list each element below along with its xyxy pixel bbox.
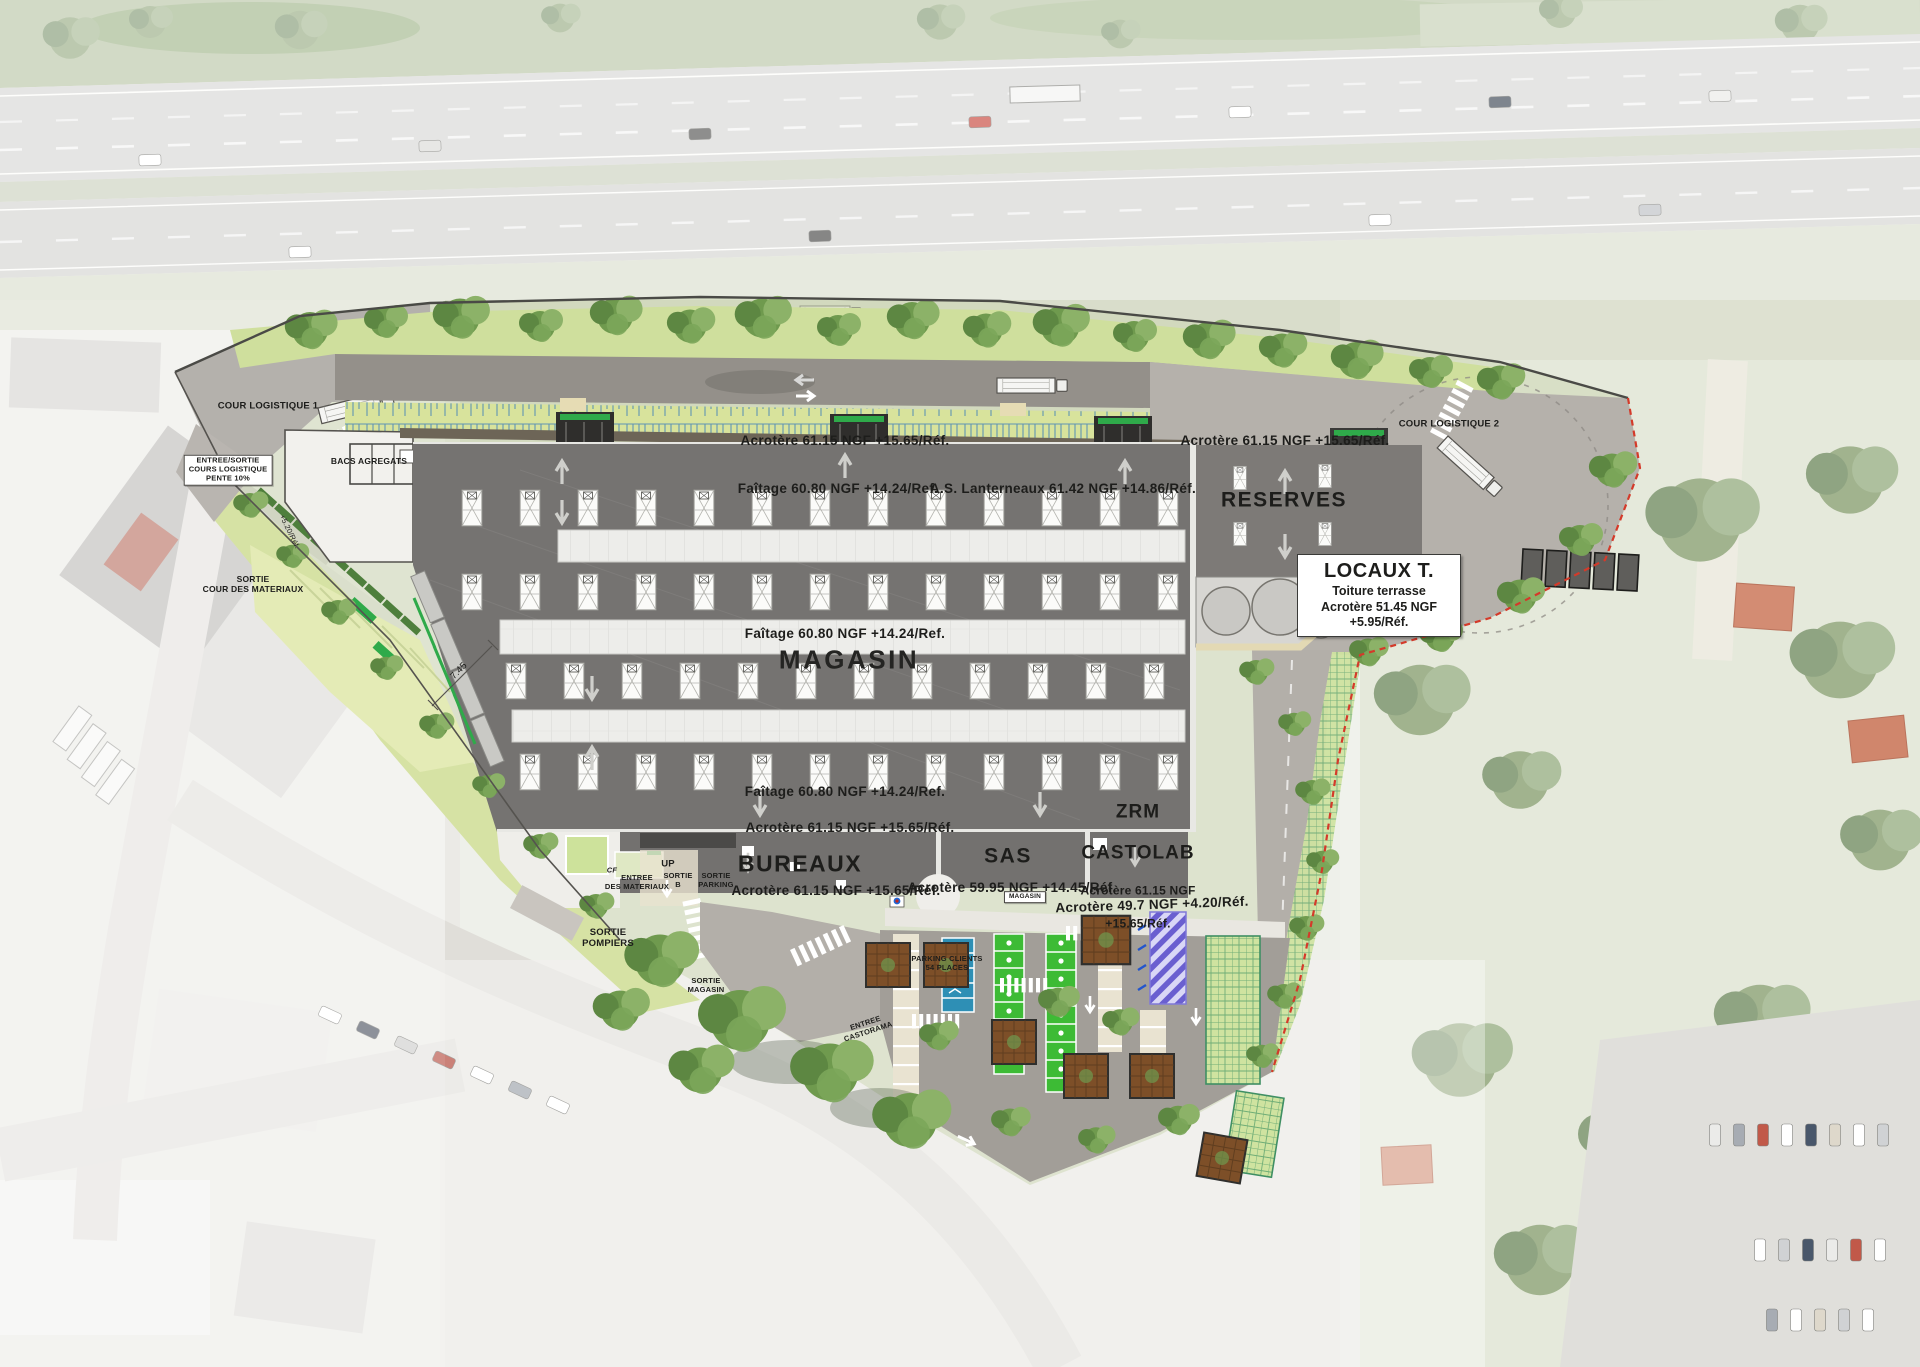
- hedge-grid-1: [1206, 936, 1260, 1084]
- site-plan-canvas: Acrotère 61.15 NGF +15.65/Réf. Faîtage 6…: [0, 0, 1920, 1367]
- label-zrm-castolab: ZRM CASTOLAB Acrotère 61.15 NGF +15.65/R…: [1081, 782, 1196, 950]
- label-lanterneaux: A.S. Lanterneaux 61.42 NGF +14.86/Réf.: [930, 481, 1196, 497]
- label-bacs-agregats: BACS AGREGATS: [331, 456, 407, 466]
- label-acrotere-north: Acrotère 61.15 NGF +15.65/Réf.: [741, 433, 950, 449]
- locaux-line2: Acrotère 51.45 NGF: [1304, 600, 1454, 616]
- label-entree-materiaux: ENTREE DES MATERIAUX: [605, 874, 669, 892]
- zrm-line2: CASTOLAB: [1081, 842, 1196, 864]
- locaux-line1: Toiture terrasse: [1304, 584, 1454, 600]
- label-reserves: RESERVES: [1221, 489, 1347, 514]
- label-cour-logistique-1: COUR LOGISTIQUE 1: [218, 400, 319, 411]
- label-sortie-materiaux: SORTIE COUR DES MATERIAUX: [203, 574, 304, 594]
- zrm-line1: ZRM: [1081, 801, 1196, 823]
- label-faitage-top: Faîtage 60.80 NGF +14.24/Ref.: [738, 481, 938, 497]
- label-cf: CF: [607, 867, 617, 876]
- locaux-line3: +5.95/Réf.: [1304, 615, 1454, 631]
- label-acrotere-reserves: Acrotère 61.15 NGF +15.65/Réf.: [1181, 433, 1390, 449]
- label-parking-clients: PARKING CLIENTS 54 PLACES: [911, 955, 982, 973]
- label-sortie-b: SORTIE B: [663, 872, 692, 890]
- label-acrotere-bureaux-top: Acrotère 61.15 NGF +15.65/Réf.: [746, 820, 955, 836]
- locaux-title: LOCAUX T.: [1304, 559, 1454, 584]
- label-faitage-mid: Faîtage 60.80 NGF +14.24/Ref.: [745, 626, 945, 642]
- label-cour-logistique-2: COUR LOGISTIQUE 2: [1399, 418, 1500, 429]
- label-bureaux: BUREAUX: [738, 850, 862, 877]
- label-sas: SAS: [984, 845, 1032, 870]
- zrm-line4: +15.65/Réf.: [1081, 917, 1196, 931]
- locaux-label-box: LOCAUX T. Toiture terrasse Acrotère 51.4…: [1297, 554, 1461, 637]
- label-magasin: MAGASIN: [779, 645, 919, 676]
- label-up: UP: [661, 858, 675, 869]
- label-faitage-bottom: Faîtage 60.80 NGF +14.24/Ref.: [745, 784, 945, 800]
- label-sortie-pompiers: SORTIE POMPIERS: [582, 927, 634, 949]
- label-magasin-entrance-chip: MAGASIN: [1004, 891, 1046, 903]
- label-sortie-parking: SORTIE PARKING: [698, 872, 733, 890]
- label-sortie-magasin: SORTIE MAGASIN: [688, 977, 725, 995]
- label-entree-sortie-cours: ENTREE/SORTIE COURS LOGISTIQUE PENTE 10%: [184, 455, 273, 486]
- plan-graphics: [0, 0, 1920, 1367]
